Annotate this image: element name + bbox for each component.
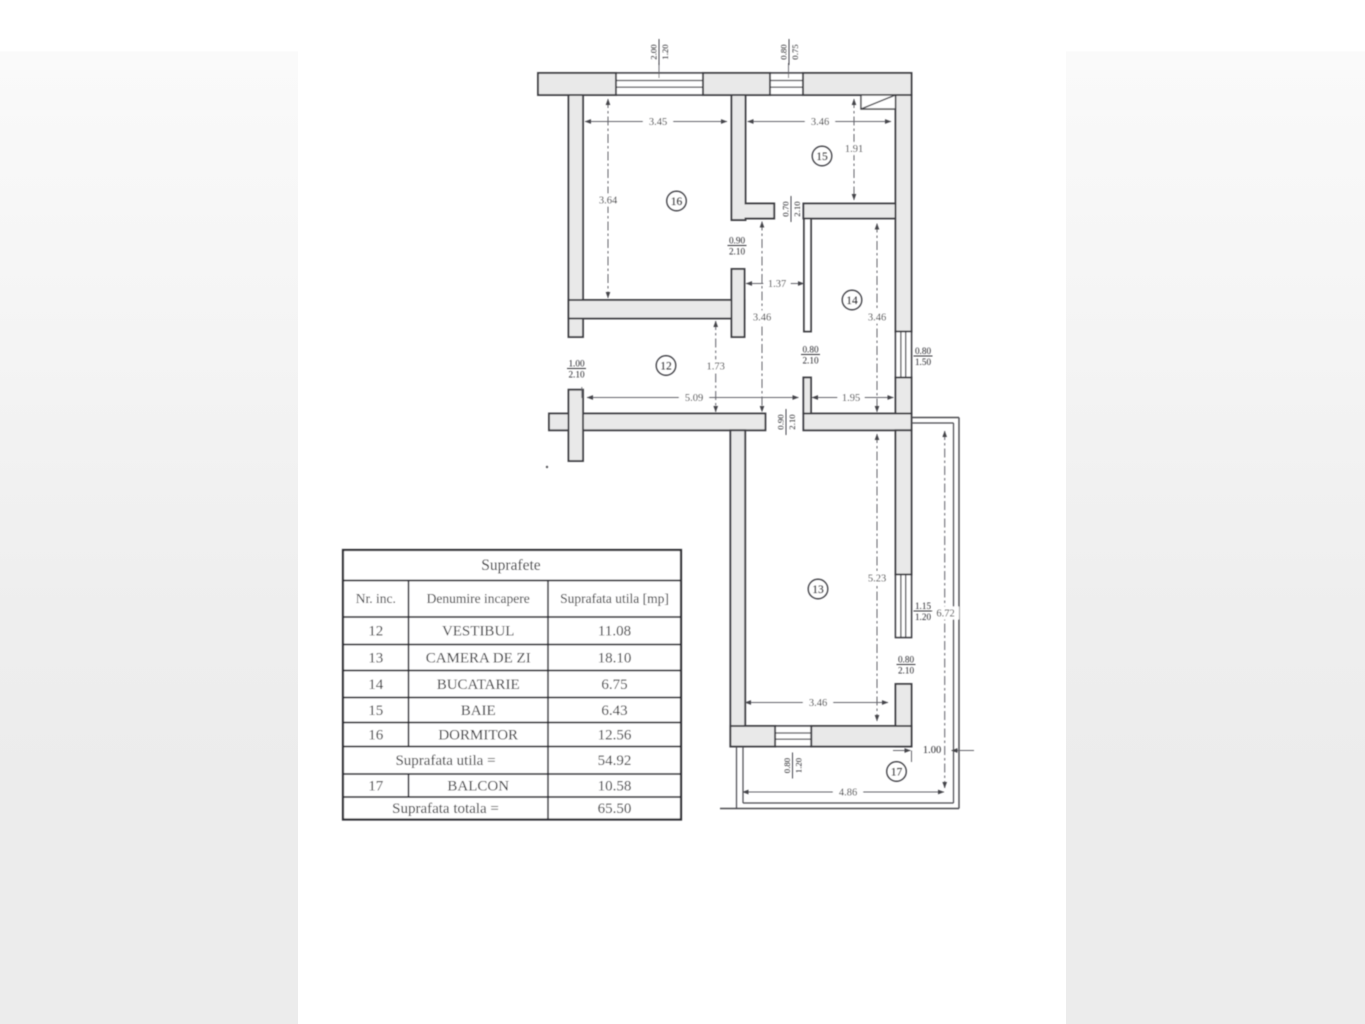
svg-text:6.75: 6.75: [601, 677, 627, 693]
svg-text:13: 13: [812, 584, 824, 596]
svg-text:3.46: 3.46: [868, 313, 886, 324]
svg-text:2.10: 2.10: [898, 665, 914, 675]
svg-text:1.20: 1.20: [660, 44, 670, 60]
svg-text:65.50: 65.50: [598, 801, 632, 817]
svg-text:BUCATARIE: BUCATARIE: [437, 677, 520, 693]
svg-text:3.46: 3.46: [753, 313, 771, 324]
svg-text:3.46: 3.46: [809, 698, 827, 709]
svg-text:14: 14: [846, 295, 858, 307]
svg-text:16: 16: [368, 728, 384, 744]
svg-text:5.09: 5.09: [685, 393, 703, 404]
svg-text:1.50: 1.50: [915, 357, 931, 367]
svg-text:1.20: 1.20: [793, 757, 803, 773]
svg-text:DORMITOR: DORMITOR: [438, 728, 518, 744]
svg-text:Suprafata utila =: Suprafata utila =: [395, 753, 495, 769]
svg-text:3.46: 3.46: [811, 117, 829, 128]
svg-text:54.92: 54.92: [598, 753, 632, 769]
svg-text:18.10: 18.10: [598, 651, 632, 667]
svg-text:13: 13: [368, 651, 383, 667]
svg-text:0.80: 0.80: [782, 757, 792, 773]
svg-text:3.45: 3.45: [649, 117, 667, 128]
svg-text:6.43: 6.43: [601, 703, 627, 719]
svg-text:Suprafete: Suprafete: [481, 557, 541, 574]
svg-text:2.10: 2.10: [792, 201, 802, 217]
svg-text:1.20: 1.20: [915, 612, 931, 622]
svg-text:12: 12: [660, 360, 672, 372]
svg-text:1.00: 1.00: [568, 358, 584, 368]
svg-text:Denumire incapere: Denumire incapere: [427, 591, 530, 606]
svg-text:16: 16: [671, 196, 683, 208]
svg-text:1.73: 1.73: [707, 362, 725, 373]
svg-text:1.15: 1.15: [915, 601, 931, 611]
svg-text:12.56: 12.56: [598, 728, 632, 744]
svg-text:5.23: 5.23: [868, 574, 886, 585]
svg-text:2.00: 2.00: [649, 44, 659, 60]
svg-text:VESTIBUL: VESTIBUL: [442, 624, 515, 640]
svg-text:1.37: 1.37: [768, 279, 786, 290]
svg-text:15: 15: [368, 703, 383, 719]
svg-text:11.08: 11.08: [598, 624, 631, 640]
svg-text:10.58: 10.58: [598, 779, 632, 795]
svg-text:17: 17: [368, 779, 384, 795]
svg-text:0.80: 0.80: [802, 344, 818, 354]
svg-text:6.72: 6.72: [936, 609, 954, 620]
svg-text:15: 15: [816, 151, 828, 163]
svg-text:3.64: 3.64: [599, 196, 618, 207]
svg-text:2.10: 2.10: [787, 414, 797, 430]
svg-text:0.80: 0.80: [898, 654, 914, 664]
svg-text:0.70: 0.70: [781, 201, 791, 217]
svg-text:CAMERA DE ZI: CAMERA DE ZI: [426, 651, 531, 667]
svg-text:2.10: 2.10: [568, 369, 584, 379]
svg-text:BAIE: BAIE: [461, 703, 496, 719]
svg-text:1.95: 1.95: [842, 393, 860, 404]
svg-text:Suprafata totala =: Suprafata totala =: [392, 801, 499, 817]
svg-text:14: 14: [368, 677, 384, 693]
svg-text:0.75: 0.75: [790, 44, 800, 60]
svg-text:0.90: 0.90: [776, 414, 786, 430]
svg-text:2.10: 2.10: [729, 246, 745, 256]
svg-text:1.91: 1.91: [845, 144, 863, 155]
svg-text:0.80: 0.80: [779, 44, 789, 60]
svg-text:2.10: 2.10: [802, 355, 818, 365]
svg-text:Nr. inc.: Nr. inc.: [356, 591, 396, 606]
svg-text:BALCON: BALCON: [447, 779, 509, 795]
svg-text:4.86: 4.86: [839, 788, 857, 799]
svg-text:12: 12: [368, 624, 383, 640]
svg-text:1.00: 1.00: [923, 745, 941, 756]
svg-text:0.80: 0.80: [915, 346, 931, 356]
svg-text:0.90: 0.90: [729, 235, 745, 245]
svg-text:Suprafata utila [mp]: Suprafata utila [mp]: [560, 591, 669, 606]
svg-text:17: 17: [891, 766, 903, 778]
